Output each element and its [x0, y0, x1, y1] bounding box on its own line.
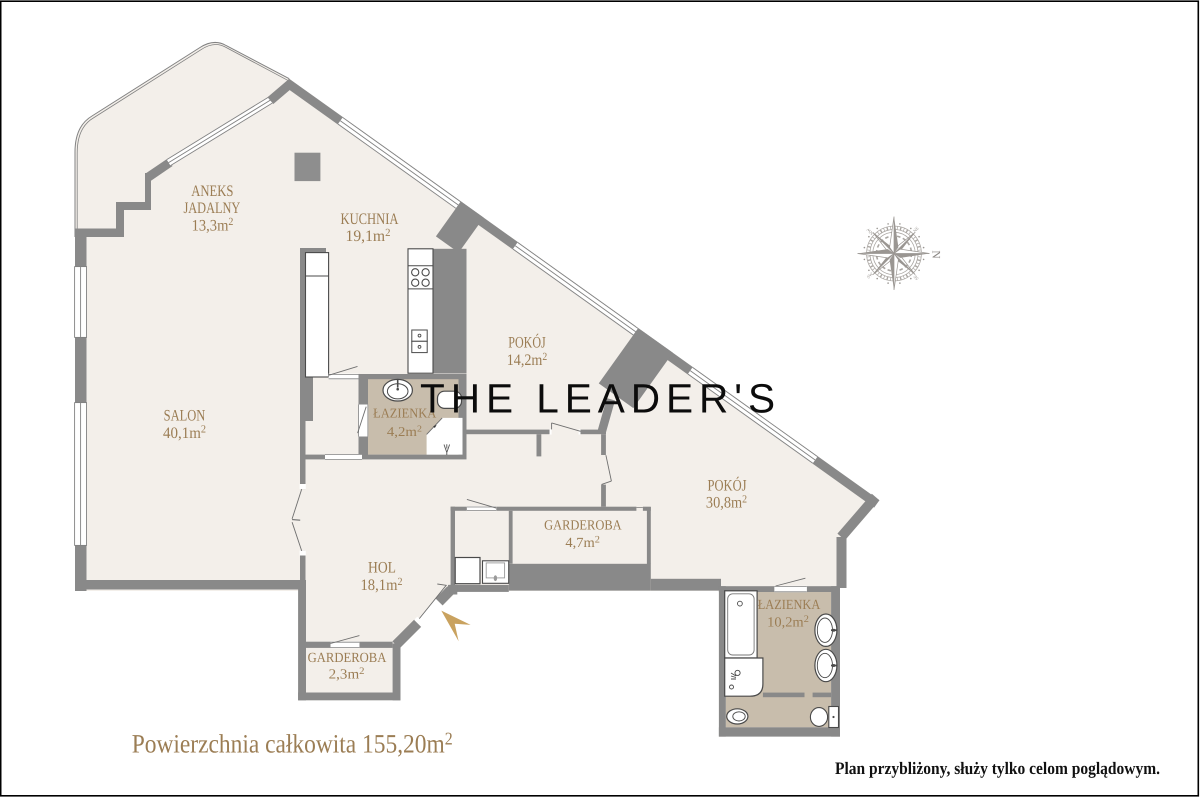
- svg-text:19,1m2: 19,1m2: [346, 227, 391, 245]
- svg-text:POKÓJ: POKÓJ: [708, 476, 747, 494]
- svg-text:KUCHNIA: KUCHNIA: [341, 211, 399, 228]
- svg-text:13,3m2: 13,3m2: [192, 216, 234, 234]
- svg-text:40,1m2: 40,1m2: [163, 424, 206, 442]
- svg-text:ŁAZIENKA: ŁAZIENKA: [758, 598, 821, 613]
- svg-text:HOL: HOL: [368, 560, 396, 577]
- svg-text:2,3m2: 2,3m2: [329, 666, 365, 683]
- svg-text:4,7m2: 4,7m2: [565, 535, 600, 552]
- svg-text:GARDEROBA: GARDEROBA: [544, 518, 622, 533]
- svg-text:14,2m2: 14,2m2: [507, 351, 548, 369]
- svg-text:POKÓJ: POKÓJ: [508, 333, 546, 351]
- svg-text:10,2m2: 10,2m2: [767, 614, 809, 631]
- svg-text:Powierzchnia całkowita 155,20m: Powierzchnia całkowita 155,20m2: [132, 729, 453, 759]
- svg-text:4,2m2: 4,2m2: [387, 424, 422, 439]
- svg-text:SALON: SALON: [164, 407, 206, 424]
- svg-text:THE LEADER'S: THE LEADER'S: [420, 376, 781, 422]
- svg-text:N: N: [930, 250, 942, 259]
- svg-text:ANEKS: ANEKS: [191, 183, 233, 200]
- svg-text:GARDEROBA: GARDEROBA: [308, 651, 388, 666]
- svg-text:JADALNY: JADALNY: [183, 200, 240, 217]
- svg-text:18,1m2: 18,1m2: [361, 576, 403, 594]
- svg-text:Plan przybliżony, służy tylko: Plan przybliżony, służy tylko celom pogl…: [835, 758, 1160, 778]
- svg-text:30,8m2: 30,8m2: [706, 494, 747, 512]
